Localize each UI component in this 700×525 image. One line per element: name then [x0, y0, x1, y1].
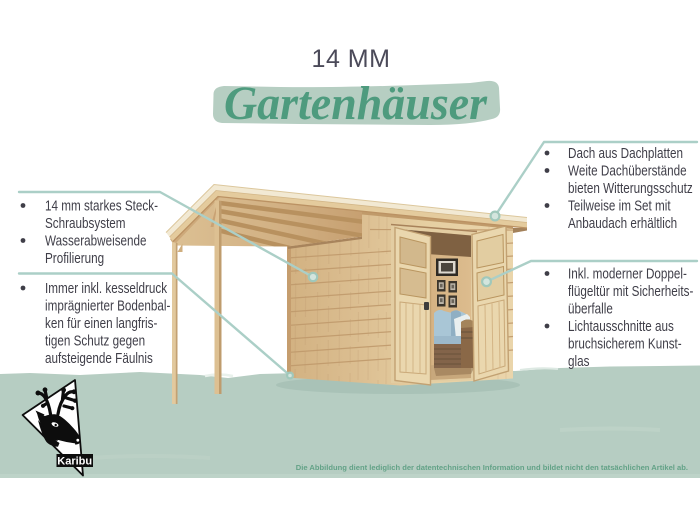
svg-text:Gartenhäuser: Gartenhäuser	[224, 77, 488, 130]
svg-text:Karibu: Karibu	[57, 456, 92, 468]
svg-text:14 MM: 14 MM	[312, 45, 391, 73]
svg-text:Dach aus Dachplatten: Dach aus Dachplatten	[568, 145, 683, 162]
svg-text:bieten Witterungsschutz: bieten Witterungsschutz	[568, 180, 693, 197]
svg-text:Immer inkl. kesseldruck: Immer inkl. kesseldruck	[45, 280, 167, 297]
svg-text:Weite Dachüberstände: Weite Dachüberstände	[568, 162, 687, 179]
svg-text:14 mm starkes Steck-: 14 mm starkes Steck-	[45, 197, 158, 214]
svg-text:tigen Schutz gegen: tigen Schutz gegen	[45, 332, 145, 349]
svg-text:Lichtausschnitte aus: Lichtausschnitte aus	[568, 318, 674, 335]
svg-text:ken für einen langfris-: ken für einen langfris-	[45, 315, 157, 332]
svg-text:Anbaudach erhältlich: Anbaudach erhältlich	[568, 215, 677, 232]
svg-text:bruchsicherem Kunst-: bruchsicherem Kunst-	[568, 335, 682, 352]
svg-text:Teilweise im Set mit: Teilweise im Set mit	[568, 197, 671, 214]
svg-text:flügeltür mit Sicherheits-: flügeltür mit Sicherheits-	[568, 283, 693, 300]
svg-text:imprägnierter Bodenbal-: imprägnierter Bodenbal-	[45, 297, 170, 314]
svg-text:glas: glas	[568, 353, 590, 370]
svg-text:aufsteigende Fäulnis: aufsteigende Fäulnis	[45, 350, 153, 367]
svg-text:Die Abbildung dient lediglich: Die Abbildung dient lediglich der datent…	[296, 463, 688, 472]
svg-text:Profilierung: Profilierung	[45, 250, 104, 267]
svg-text:Inkl. moderner Doppel-: Inkl. moderner Doppel-	[568, 265, 687, 282]
svg-text:Schraubsystem: Schraubsystem	[45, 215, 126, 232]
svg-text:Wasserabweisende: Wasserabweisende	[45, 232, 147, 249]
svg-text:überfalle: überfalle	[568, 300, 613, 317]
